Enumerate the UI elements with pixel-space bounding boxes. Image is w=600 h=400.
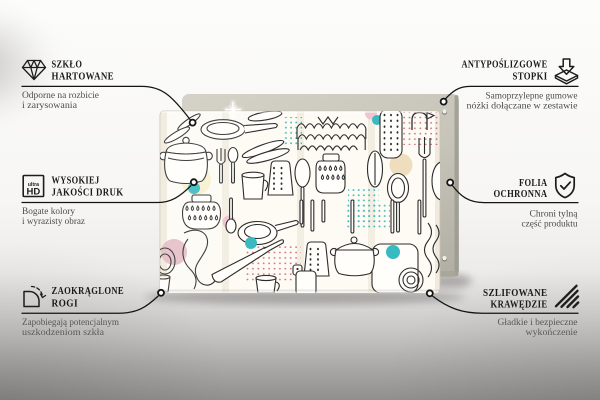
svg-text:FOLIA: FOLIA <box>519 178 548 189</box>
svg-text:HD: HD <box>27 187 41 198</box>
svg-text:i zarysowania: i zarysowania <box>22 100 78 111</box>
svg-text:STOPKI: STOPKI <box>513 71 548 82</box>
svg-text:ANTYPOŚLIZGOWE: ANTYPOŚLIZGOWE <box>462 59 548 71</box>
svg-text:HARTOWANE: HARTOWANE <box>52 71 115 82</box>
svg-text:KRAWĘDZIE: KRAWĘDZIE <box>491 299 548 310</box>
svg-text:WYSOKIEJ: WYSOKIEJ <box>52 175 100 186</box>
svg-text:wykończenie: wykończenie <box>526 327 579 338</box>
svg-text:uszkodzeniom szkła: uszkodzeniom szkła <box>22 327 105 338</box>
svg-text:OCHRONNA: OCHRONNA <box>494 189 548 200</box>
svg-text:i wyrazisty obraz: i wyrazisty obraz <box>22 216 86 227</box>
svg-text:ZAOKRĄGLONE: ZAOKRĄGLONE <box>52 286 125 297</box>
svg-text:SZKŁO: SZKŁO <box>52 60 83 71</box>
svg-text:część produktu: część produktu <box>522 218 578 229</box>
svg-text:SZLIFOWANE: SZLIFOWANE <box>483 288 548 299</box>
svg-text:JAKOŚCI DRUK: JAKOŚCI DRUK <box>52 186 124 198</box>
svg-text:ROGI: ROGI <box>52 298 79 309</box>
svg-text:nóżki dołączane w zestawie: nóżki dołączane w zestawie <box>467 101 579 112</box>
